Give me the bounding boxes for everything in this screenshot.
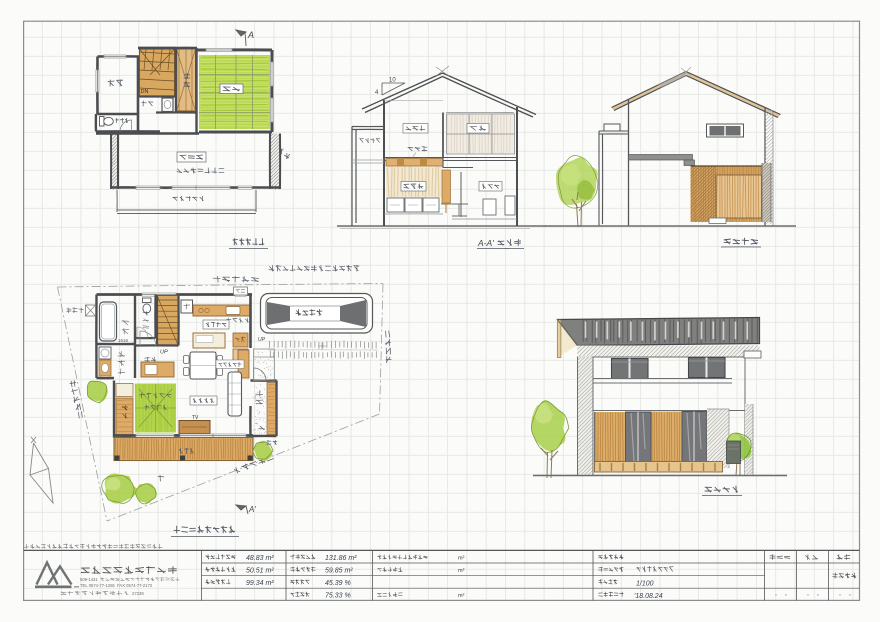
svg-text:A-A': A-A': [477, 238, 494, 248]
svg-text:27238: 27238: [132, 591, 144, 596]
svg-text:131.86 m²: 131.86 m²: [325, 555, 357, 562]
svg-text:A: A: [247, 30, 254, 40]
svg-text:50.51 m²: 50.51 m²: [246, 568, 274, 575]
svg-text:75.33 %: 75.33 %: [325, 593, 351, 600]
svg-text:509-1431: 509-1431: [80, 577, 98, 582]
svg-text:'18.08.24: '18.08.24: [634, 593, 663, 600]
svg-text:UP: UP: [160, 350, 168, 356]
svg-text:TEL 0574-77-1255 FAX 0574-77-: TEL 0574-77-1255 FAX 0574-77-2172: [80, 583, 153, 588]
svg-text:UP: UP: [258, 337, 266, 343]
svg-text:10: 10: [389, 78, 396, 84]
svg-text:45.39 %: 45.39 %: [325, 580, 351, 587]
svg-text:DN: DN: [141, 89, 149, 95]
svg-text:99.34 m²: 99.34 m²: [246, 580, 274, 587]
svg-text:m²: m²: [458, 568, 465, 574]
svg-text:59.85 m²: 59.85 m²: [325, 568, 353, 575]
svg-text:A': A': [248, 505, 256, 514]
svg-text:TV: TV: [192, 415, 199, 421]
svg-text:48.83 m²: 48.83 m²: [246, 555, 274, 562]
svg-text:m²: m²: [458, 593, 465, 599]
svg-text:m²: m²: [458, 556, 465, 562]
svg-text:1/100: 1/100: [636, 581, 654, 588]
svg-text:1616: 1616: [118, 338, 129, 343]
